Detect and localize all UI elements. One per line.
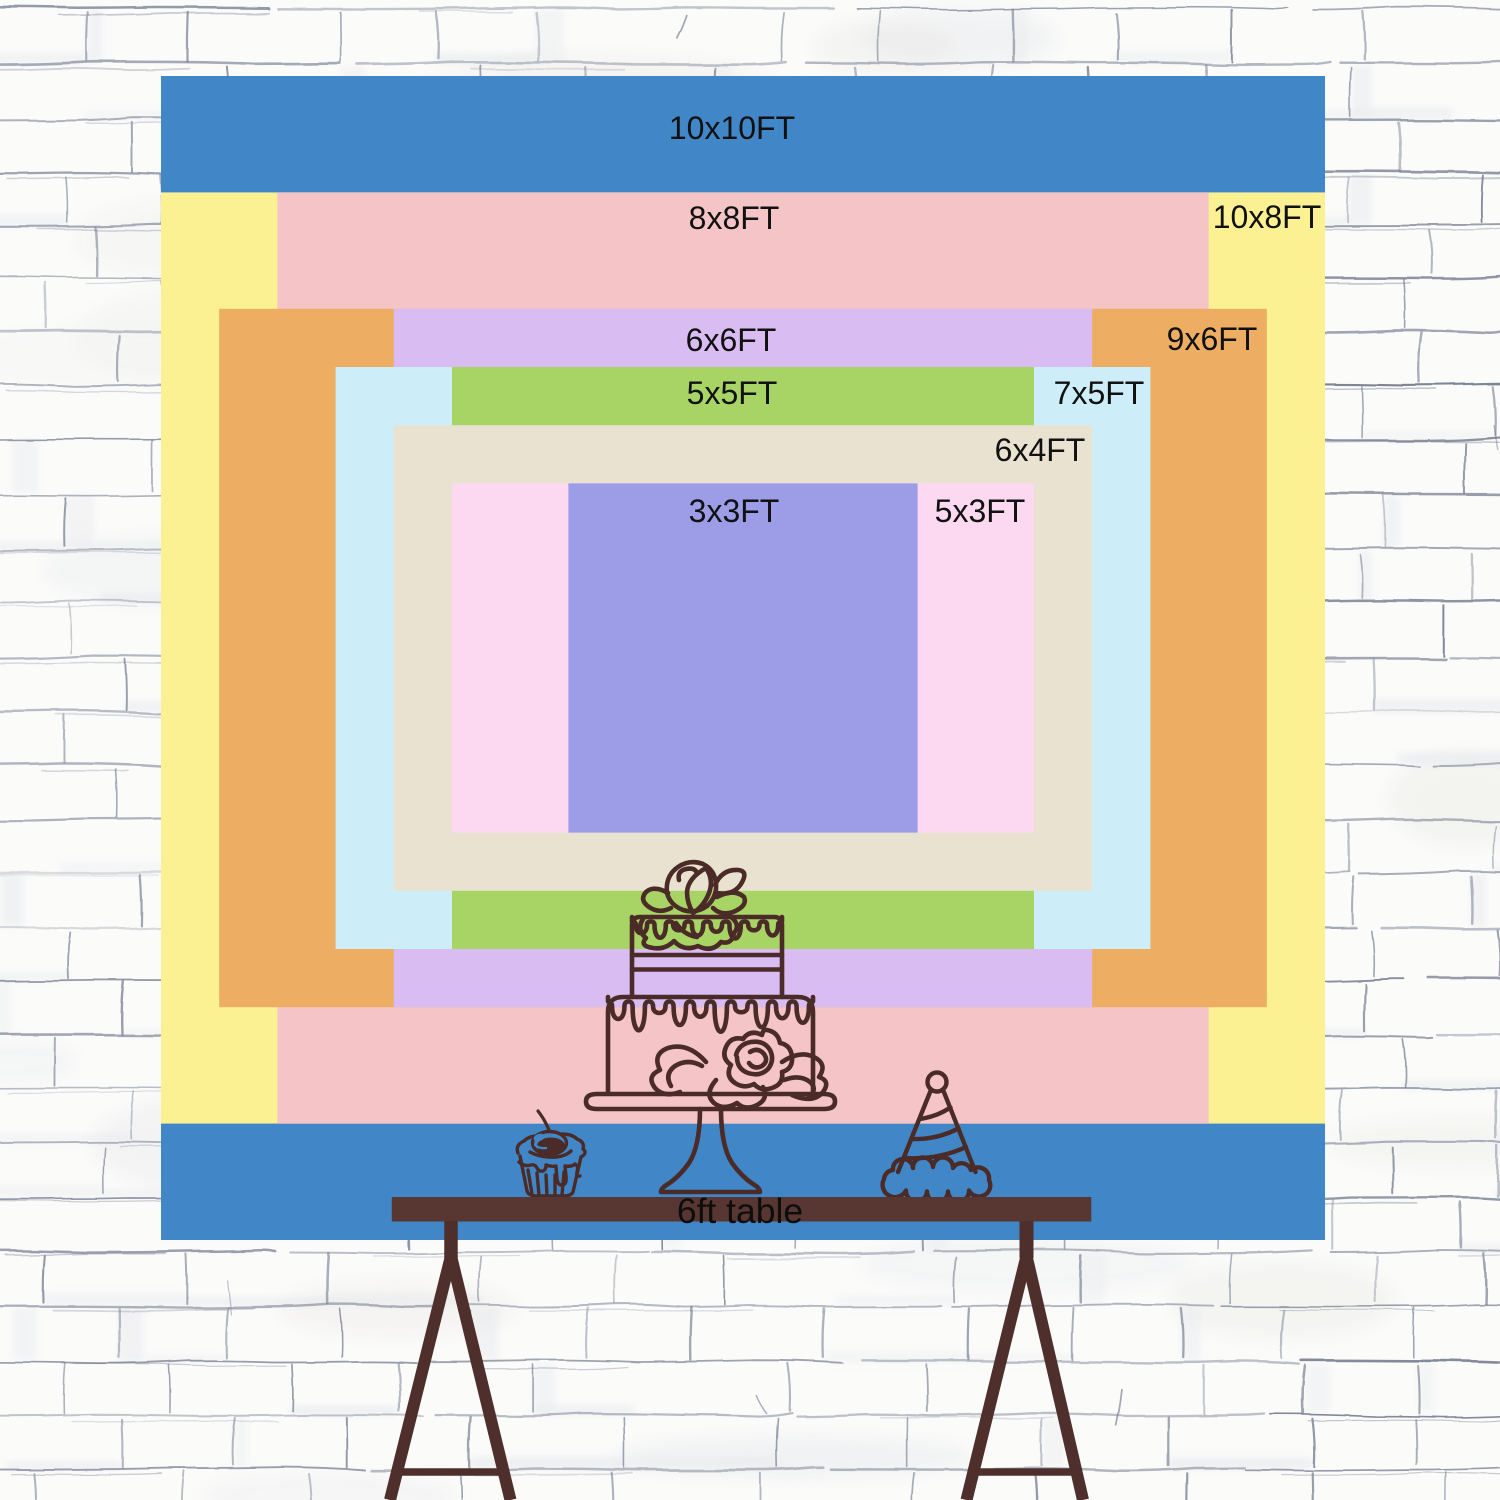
svg-text:5x5FT: 5x5FT bbox=[687, 375, 778, 411]
svg-text:6x6FT: 6x6FT bbox=[686, 322, 777, 358]
svg-text:7x5FT: 7x5FT bbox=[1054, 375, 1145, 411]
svg-text:9x6FT: 9x6FT bbox=[1167, 321, 1258, 357]
svg-text:8x8FT: 8x8FT bbox=[689, 200, 780, 236]
svg-text:6ft table: 6ft table bbox=[677, 1191, 803, 1231]
svg-text:3x3FT: 3x3FT bbox=[689, 493, 780, 529]
svg-text:5x3FT: 5x3FT bbox=[935, 493, 1026, 529]
svg-text:10x10FT: 10x10FT bbox=[669, 110, 795, 146]
svg-text:10x8FT: 10x8FT bbox=[1213, 199, 1321, 235]
svg-text:6x4FT: 6x4FT bbox=[995, 432, 1086, 468]
